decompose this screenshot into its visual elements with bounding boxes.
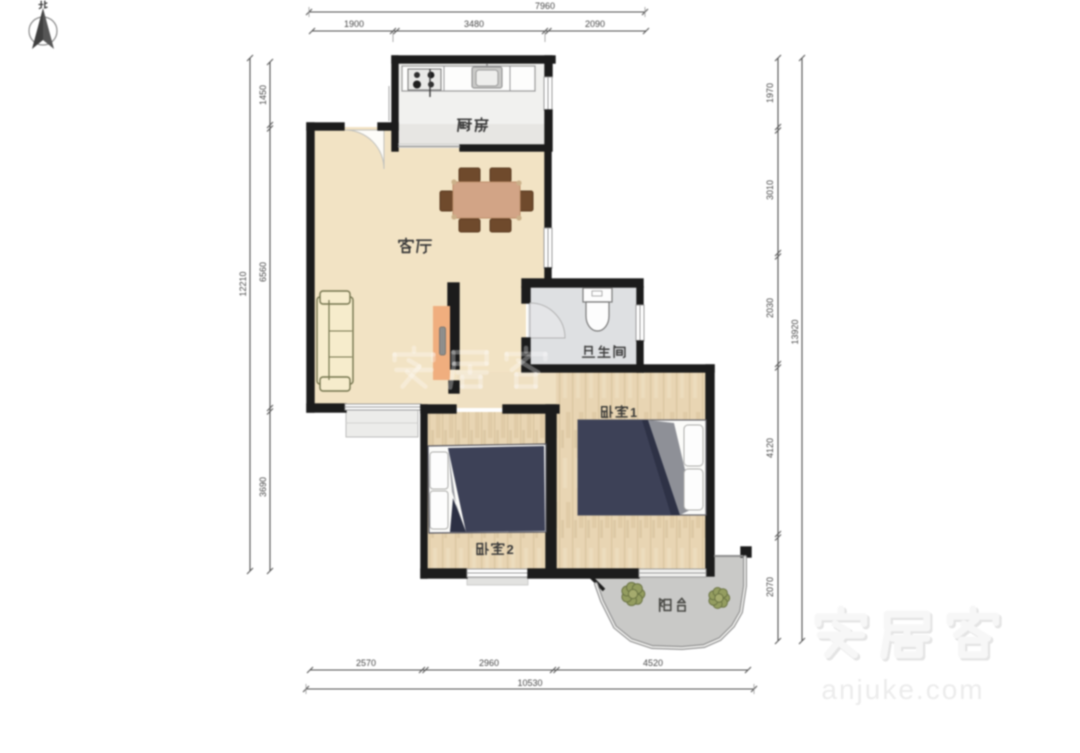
svg-text:2090: 2090 (585, 19, 605, 29)
svg-text:2: 2 (506, 542, 513, 557)
svg-text:2070: 2070 (765, 577, 775, 597)
svg-text:4520: 4520 (643, 658, 663, 668)
svg-text:1970: 1970 (765, 83, 775, 103)
svg-text:anjuke.com: anjuke.com (821, 674, 984, 705)
svg-text:2030: 2030 (765, 298, 775, 318)
svg-text:3480: 3480 (464, 19, 484, 29)
svg-text:10530: 10530 (517, 678, 542, 688)
svg-text:6560: 6560 (258, 262, 268, 282)
svg-text:3010: 3010 (765, 180, 775, 200)
svg-text:4120: 4120 (765, 438, 775, 458)
svg-text:1900: 1900 (344, 19, 364, 29)
svg-text:1: 1 (630, 406, 637, 420)
svg-text:13920: 13920 (790, 319, 800, 344)
svg-text:1450: 1450 (258, 85, 268, 105)
svg-text:12210: 12210 (238, 271, 248, 296)
svg-text:7960: 7960 (535, 1, 555, 11)
svg-text:2570: 2570 (356, 658, 376, 668)
svg-text:3690: 3690 (258, 477, 268, 497)
svg-text:2960: 2960 (479, 658, 499, 668)
